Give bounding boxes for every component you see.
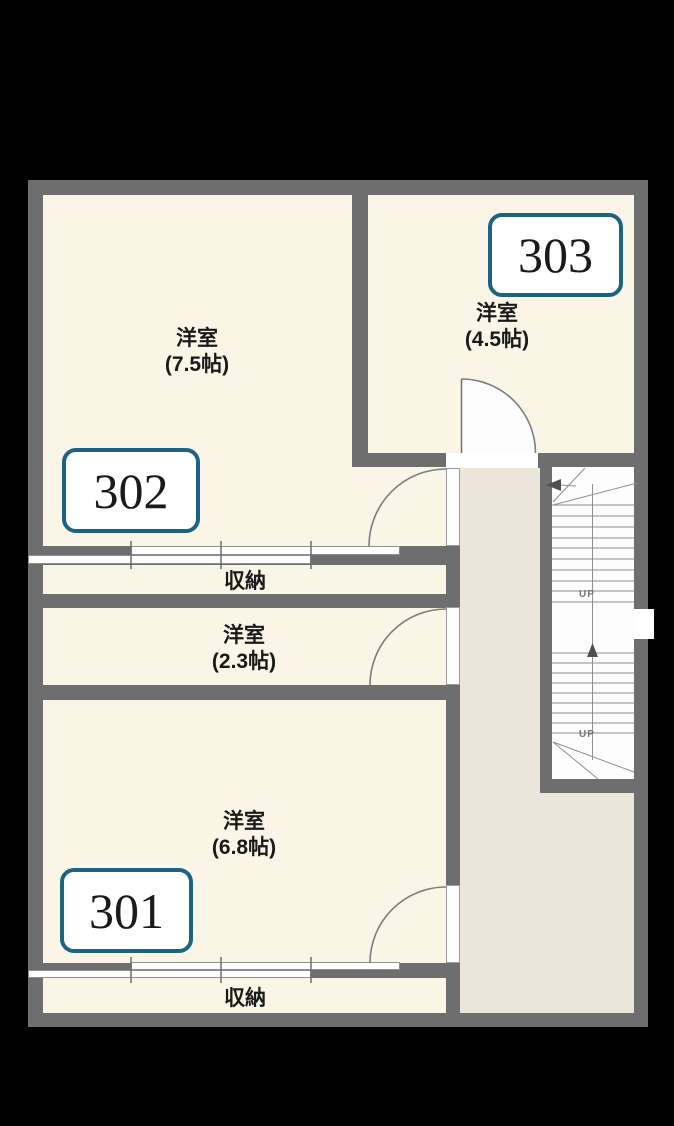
closet-301-track-lower xyxy=(28,970,311,978)
door-302-opening xyxy=(446,468,460,546)
screen-background: 302 303 301 洋室 (7.5帖) 洋室 (4.5帖) 洋室 (2.3帖… xyxy=(0,0,674,1126)
room-301-tag: 301 xyxy=(60,868,193,953)
room-303-type: 洋室 xyxy=(397,301,597,327)
stairs-up-label-2: UP xyxy=(579,729,595,741)
door-301-opening xyxy=(446,885,460,963)
room-303-number: 303 xyxy=(518,226,593,284)
room-302-tag: 302 xyxy=(62,448,200,533)
stairs-up-label-1: UP xyxy=(579,589,595,601)
doorway-303-opening xyxy=(446,453,538,468)
hallway-floor-upper xyxy=(460,468,540,1013)
closet-302-label: 収納 xyxy=(145,569,345,595)
room-301-label: 洋室 (6.8帖) xyxy=(144,809,344,861)
room-303-tag: 303 xyxy=(488,213,623,297)
room-301-type: 洋室 xyxy=(144,809,344,835)
stair-landing-window xyxy=(634,609,654,639)
closet-302-track-lower xyxy=(28,555,311,564)
room-302-type: 洋室 xyxy=(97,326,297,352)
hallway-floor-lower xyxy=(540,793,634,1013)
room-302-number: 302 xyxy=(94,462,169,520)
room-303-label: 洋室 (4.5帖) xyxy=(397,301,597,353)
room-303-size: (4.5帖) xyxy=(397,327,597,353)
closet-302-track-upper xyxy=(131,546,400,555)
room-301-number: 301 xyxy=(89,882,164,940)
small-room-size: (2.3帖) xyxy=(144,649,344,675)
closet-301-track-upper xyxy=(131,962,400,970)
room-302-label: 洋室 (7.5帖) xyxy=(97,326,297,378)
closet-301-label: 収納 xyxy=(145,986,345,1012)
small-room-type: 洋室 xyxy=(144,623,344,649)
room-301-size: (6.8帖) xyxy=(144,835,344,861)
door-small-room-opening xyxy=(446,607,460,685)
small-room-label: 洋室 (2.3帖) xyxy=(144,623,344,675)
room-302-size: (7.5帖) xyxy=(97,352,297,378)
room-302-floor-annex xyxy=(352,467,446,546)
